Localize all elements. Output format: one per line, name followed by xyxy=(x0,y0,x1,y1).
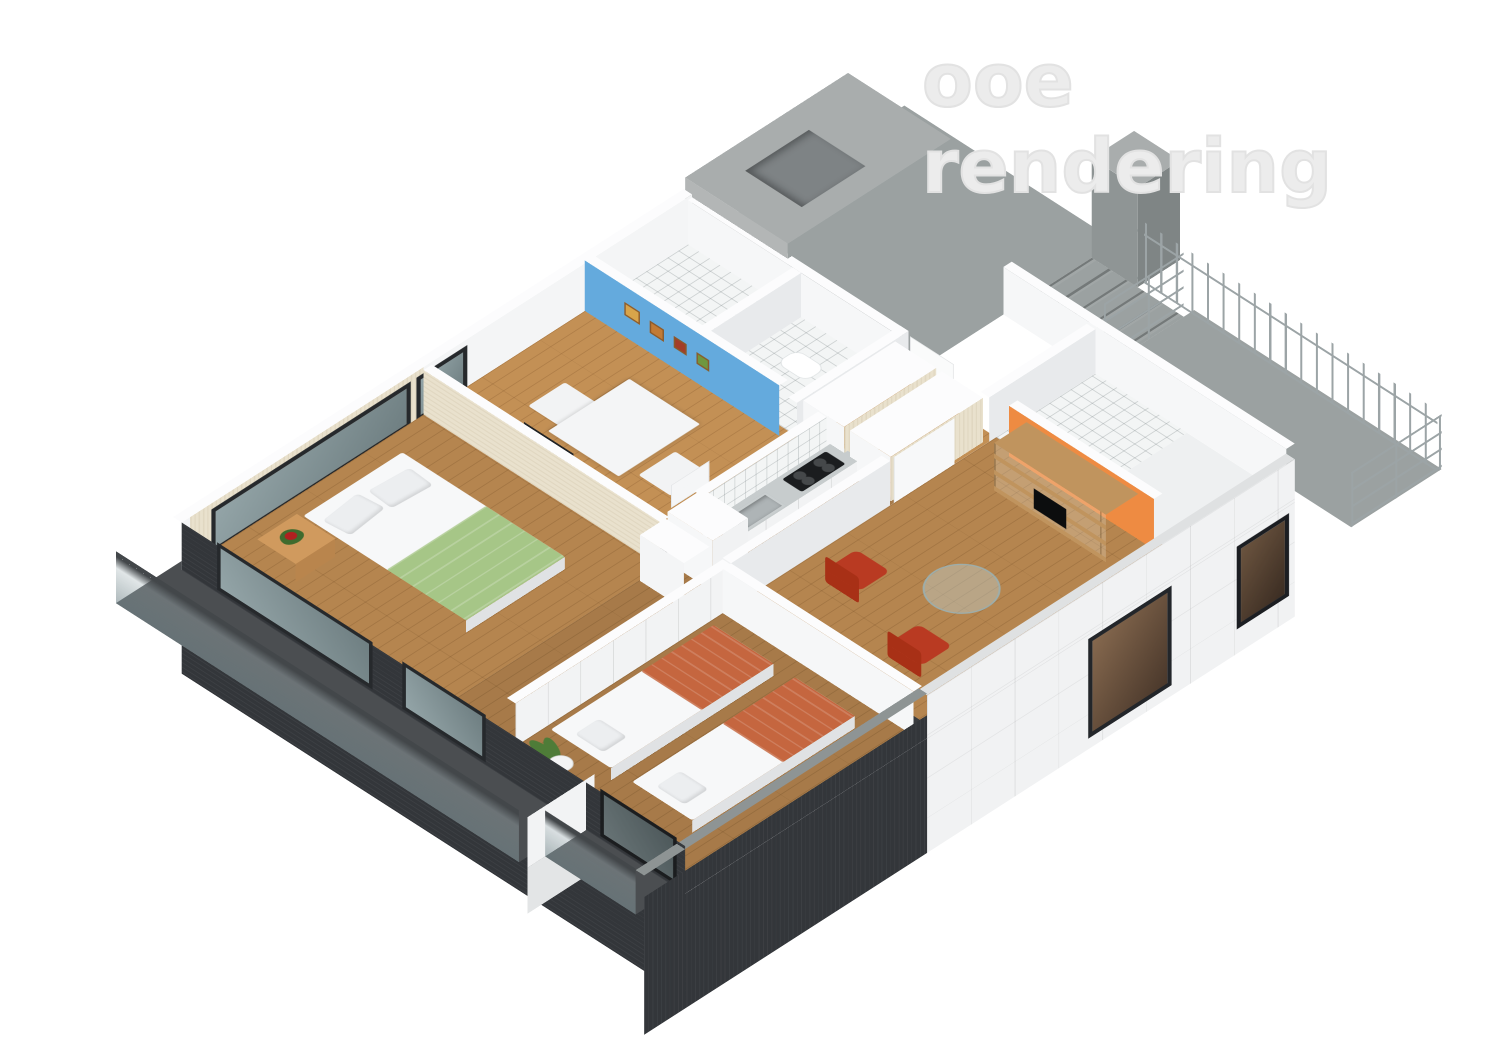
pillow xyxy=(323,493,386,535)
rendering-canvas: ooe rendering xyxy=(0,0,1500,1061)
roof-shaft-opening xyxy=(745,130,865,207)
floorplan-3d xyxy=(190,137,1350,882)
watermark-text: ooe rendering xyxy=(922,38,1500,210)
pillow xyxy=(656,771,708,805)
picture-frame-2 xyxy=(650,321,664,342)
pillow xyxy=(575,719,627,753)
pillow xyxy=(368,468,433,509)
picture-frame-3 xyxy=(674,336,687,356)
walkway-end-railing xyxy=(1347,466,1442,527)
living-tv xyxy=(1034,488,1067,529)
picture-frame-1 xyxy=(624,302,640,325)
picture-frame-4 xyxy=(696,352,709,372)
